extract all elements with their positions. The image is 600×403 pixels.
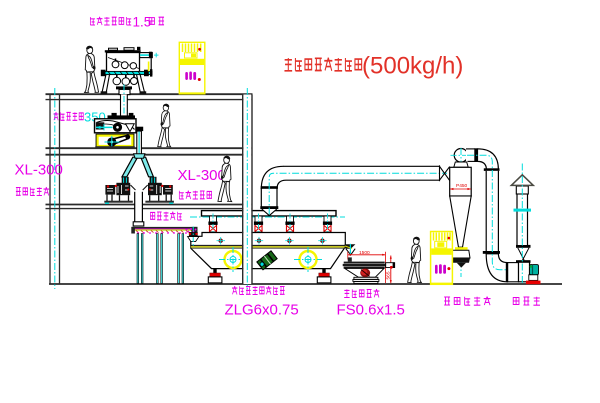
svg-text:(500kg/h): (500kg/h) (362, 53, 463, 80)
svg-text:565: 565 (386, 271, 392, 279)
svg-text:XL-300: XL-300 (178, 167, 226, 184)
svg-text:P450: P450 (456, 183, 468, 189)
svg-text:XL-300: XL-300 (15, 162, 63, 179)
svg-text:ZLG6x0.75: ZLG6x0.75 (225, 302, 299, 319)
svg-text:FS0.6x1.5: FS0.6x1.5 (337, 302, 405, 319)
svg-text:1500: 1500 (359, 250, 370, 256)
svg-text:1.5: 1.5 (133, 15, 152, 30)
